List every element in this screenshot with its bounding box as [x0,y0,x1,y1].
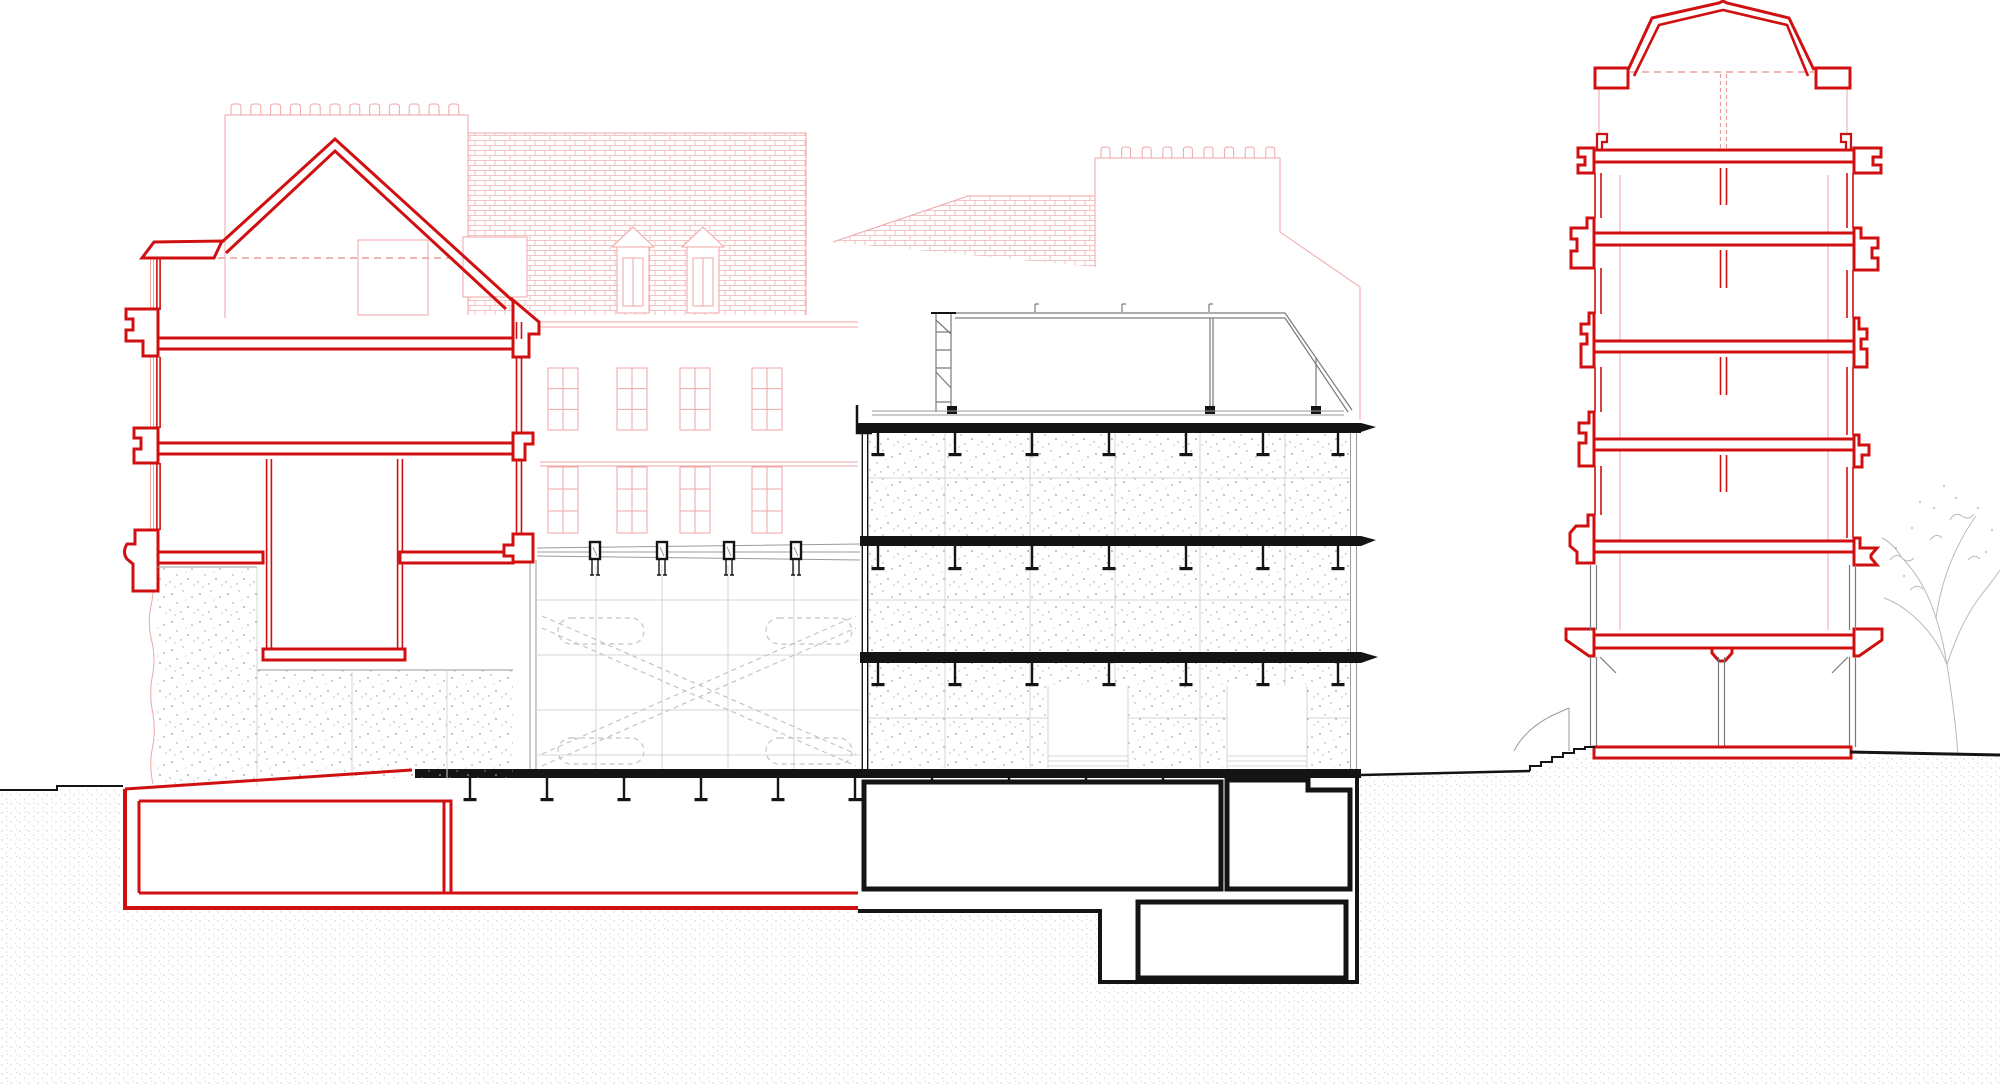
tower-cornice-r6 [1854,148,1881,173]
hanger-flange [541,798,554,801]
tower-center-corbel [1712,648,1732,661]
middle-building-section [415,304,1378,982]
hanger-flange [1332,567,1345,570]
hanger-flange [949,683,962,686]
pavilion-roof-tab [1035,304,1213,312]
hanger-flange [1026,683,1039,686]
steel-hanger [541,777,554,801]
hanger-flange [1103,453,1116,456]
ground-floor-slab [415,769,1361,778]
section-drawing: Architectural cross-section drawing with… [0,0,2000,1086]
sunken-slab [263,649,405,660]
hanger-flange [872,683,885,686]
tower-cornice-l6 [1578,148,1594,173]
tie-anchor-row [537,542,860,575]
tree-trunk [1936,618,1958,756]
eaves-canopy [142,241,222,258]
hanger-flange [1257,567,1270,570]
left-wall [157,258,160,530]
basement-room-b [1227,780,1350,889]
party-wall-edge [862,424,867,769]
masonry-hatch-block-b [257,670,513,778]
tower-slab-4 [1594,341,1854,352]
roof-slab [857,423,1361,433]
tower-console-r1 [1854,629,1882,656]
facade-windows [548,368,782,533]
facade-window [548,368,782,533]
tower-slab-2 [1594,541,1854,552]
hanger-flange [618,798,631,801]
tie-anchor [724,542,734,575]
background-chimney-left [358,240,428,315]
cornice-bracket-l4 [125,530,159,591]
mullion-foot [1205,406,1215,414]
basement-partition [444,801,451,893]
roof-eave-block-left [1595,68,1628,88]
pavilion-braced-mast [936,313,951,412]
hanger-flange [695,798,708,801]
tree-foliage-dots [1895,485,1993,577]
tower-right-wall [1847,173,1853,538]
tower-cornice-r5 [1854,228,1878,270]
tower-console-l1 [1566,629,1594,656]
right-facade-plane [1351,424,1357,770]
escalator-diagonals [542,616,856,766]
escalators-dashed [542,616,856,766]
hanger-flange [772,798,785,801]
rooftop-pavilion [872,304,1352,415]
tie-rods [537,544,860,560]
anchor-legs [724,559,734,575]
steel-hanger [618,777,631,801]
escalator-body [766,618,852,644]
hanger-flange [1332,683,1345,686]
tower-window-band-walls [1591,565,1856,630]
steel-hanger [464,777,477,801]
tie-anchor [791,542,801,575]
tower-section [1514,1,1882,771]
mullion-foot [1311,406,1321,414]
anchor-legs [791,559,801,575]
tower-cornice-l3 [1579,412,1594,466]
middle-floor-slab [860,652,1361,663]
hanger-flange [1257,453,1270,456]
tower-slab-1 [1594,635,1854,648]
drawing-canvas: Architectural cross-section drawing with… [0,0,2000,1086]
hanger-flange [1180,683,1193,686]
rear-roof-brick-slope [833,196,1095,267]
roof-center-dashed [1721,74,1727,148]
tower-cornice-r2 [1854,538,1877,565]
roof-slab-right-tip [1361,423,1376,432]
upper-floor-slab [860,536,1361,546]
facade-cornice-lines [540,322,858,466]
cornice-bracket-l2 [126,309,158,356]
merlon [1101,147,1275,158]
steel-hanger [849,777,862,801]
hanger-flange [849,798,862,801]
hanger-flange [1180,567,1193,570]
parapet-stubs [1597,134,1851,150]
basement-room-c [1138,902,1346,978]
background-chimney-right [463,237,527,297]
hanger-flange [1332,453,1345,456]
merlon [231,104,459,115]
middle-slab-right-tip [1361,652,1378,663]
tower-cornice-r3 [1854,435,1869,467]
floor-slab-4-right [400,552,513,563]
hanger-flange [1026,567,1039,570]
crenellated-parapet-right-outline [1095,158,1360,420]
anchor-legs [590,559,600,575]
steel-hanger [695,777,708,801]
tower-cornice-l2 [1570,515,1594,563]
crenellated-parapet-left-merlons [231,104,459,115]
crenellated-parapet-right-merlons [1101,147,1275,158]
pavilion-roof [955,313,1352,412]
interior-walls [267,459,403,649]
tower-slab-6 [1594,150,1854,162]
floor-slab-2 [158,338,513,349]
tree-branches [1882,516,2000,665]
hanger-flange [1103,683,1116,686]
tower-cornice-r4 [1854,318,1867,367]
roof-eave-block-right [1816,68,1850,88]
cornice-bracket-l3 [134,428,158,463]
basement-room-a [864,782,1221,889]
floor-slab-4-left [158,552,263,563]
tower-slab-3 [1594,439,1854,450]
tie-anchor [590,542,600,575]
tower-base-slab [1594,747,1851,758]
hanger-flange [1103,567,1116,570]
hanger-flange [949,453,962,456]
hanger-flange [1026,453,1039,456]
mullion-foot [947,406,957,414]
tower-ground-floor-structure [1591,657,1856,747]
hanger-flange [1180,453,1193,456]
window-opening-2 [1227,686,1307,772]
basement-outer-wall [125,789,858,908]
existing-wall-beyond [530,560,860,769]
tower-slab-5 [1594,233,1854,245]
basement-inner-lines [139,801,858,893]
hanger-flange [1257,683,1270,686]
pavilion-roof-tabs [1035,304,1213,312]
masonry-hatch-block-a [157,567,257,786]
pavilion-floor-lines [872,411,1344,415]
floor-slab-3 [158,443,513,454]
hanger-flange [872,453,885,456]
upper-slab-right-tip [1361,536,1376,546]
tower-cornice-l5 [1571,218,1594,268]
window-opening-1 [1048,686,1128,772]
tree [1882,485,2000,756]
tower-cornice-l4 [1581,313,1594,367]
steel-hanger [772,777,785,801]
escalator-body [766,738,852,764]
tie-rod [537,544,860,560]
red-basement [125,789,858,908]
cornice-bracket-r3 [513,433,533,460]
hanger-flange [464,798,477,801]
old-wall-wavy-line [149,570,154,784]
crenellated-parapet-left-outline [225,115,468,318]
steps-railing [1514,708,1569,751]
bell-roof-inner [1634,10,1808,76]
pavilion-mullions [1210,318,1316,408]
existing-wall-edge [530,560,536,769]
hanger-flange [949,567,962,570]
tree-foliage-squiggles [1890,514,1980,590]
hanger-flange [872,567,885,570]
